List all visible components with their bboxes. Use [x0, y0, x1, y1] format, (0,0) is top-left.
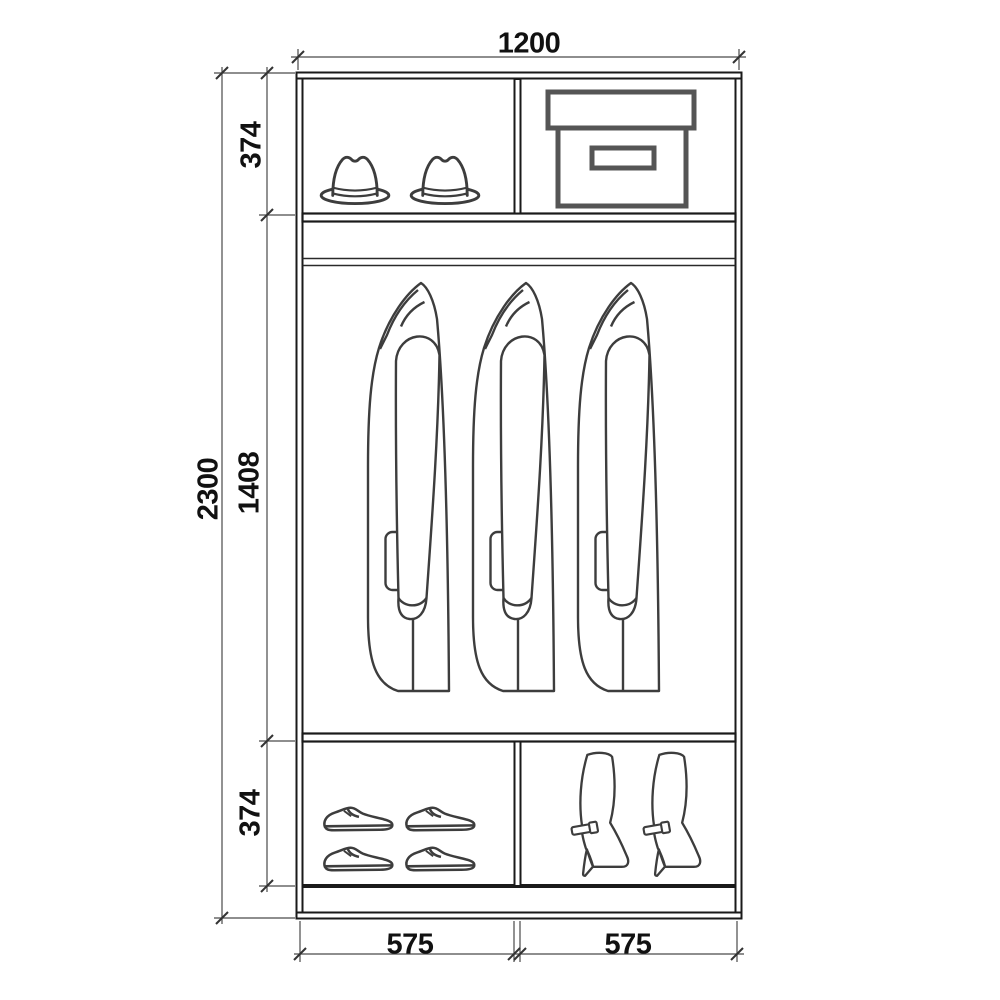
wardrobe-diagram: 1200 2300 374 1408 374 575 575	[0, 0, 1000, 1000]
dim-label-overall-height: 2300	[195, 458, 224, 521]
dim-label-overall-width: 1200	[498, 30, 561, 59]
bottom-panel	[297, 913, 742, 919]
right-side-panel	[736, 79, 742, 913]
high-heel-boot-icon	[639, 748, 703, 880]
coat-icon	[573, 281, 665, 705]
coat-icon	[468, 281, 560, 705]
top-shelf	[303, 214, 736, 222]
top-divider	[515, 79, 521, 214]
dim-label-left-bay: 575	[387, 931, 434, 960]
coat-icon	[363, 281, 455, 705]
dim-label-right-bay: 575	[605, 931, 652, 960]
dim-label-middle-section: 1408	[236, 452, 265, 515]
dress-shoe-icon	[402, 802, 478, 836]
high-heel-boot-icon	[567, 748, 631, 880]
bottom-divider	[515, 742, 521, 887]
dress-shoe-icon	[320, 842, 396, 876]
top-panel	[297, 73, 742, 79]
fedora-hat-icon	[408, 148, 482, 206]
dim-label-bottom-section: 374	[237, 790, 266, 837]
fedora-hat-icon	[318, 148, 392, 206]
bottom-shelf	[303, 734, 736, 742]
dim-label-top-section: 374	[238, 122, 267, 169]
left-side-panel	[297, 79, 303, 913]
dress-shoe-icon	[320, 802, 396, 836]
dim-widths-bottom	[294, 921, 744, 962]
dress-shoe-icon	[402, 842, 478, 876]
hanging-rod	[303, 259, 736, 266]
storage-box-icon	[540, 86, 698, 212]
